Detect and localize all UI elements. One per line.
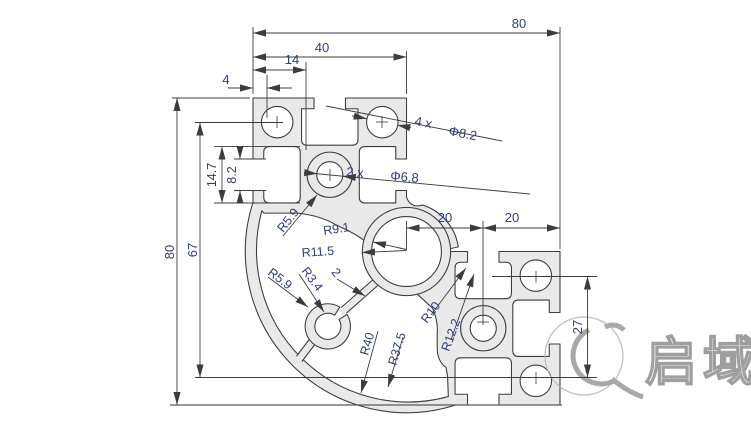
dim-20-left: 20 [438, 210, 452, 225]
dim-80-left: 80 [162, 245, 177, 259]
logo-q-tail-icon [612, 379, 643, 397]
logo-q-swoosh-icon [573, 330, 614, 384]
logo-q-hook-icon [605, 325, 624, 330]
label-dia-6-8: Φ6.8 [390, 168, 420, 185]
label-dia-8-2: Φ8.2 [447, 123, 478, 143]
dim-14-7: 14.7 [205, 163, 219, 187]
dim-20-right: 20 [505, 210, 519, 225]
dim-4: 4 [222, 72, 229, 87]
profile-cross-section [245, 98, 560, 413]
dim-40: 40 [315, 40, 329, 55]
label-2x: 2 x [346, 164, 365, 180]
label-4x: 4 x [413, 113, 433, 131]
technical-drawing-page: 启域 [0, 0, 751, 428]
technical-drawing: 启域 [0, 0, 751, 428]
dim-8-2: 8.2 [225, 166, 239, 183]
dim-67: 67 [185, 243, 200, 257]
dim-14: 14 [285, 52, 299, 67]
dim-80-top: 80 [512, 16, 526, 31]
dim-27: 27 [570, 320, 585, 334]
logo-text: 启域 [645, 334, 751, 392]
label-r11-5: R11.5 [301, 244, 334, 260]
